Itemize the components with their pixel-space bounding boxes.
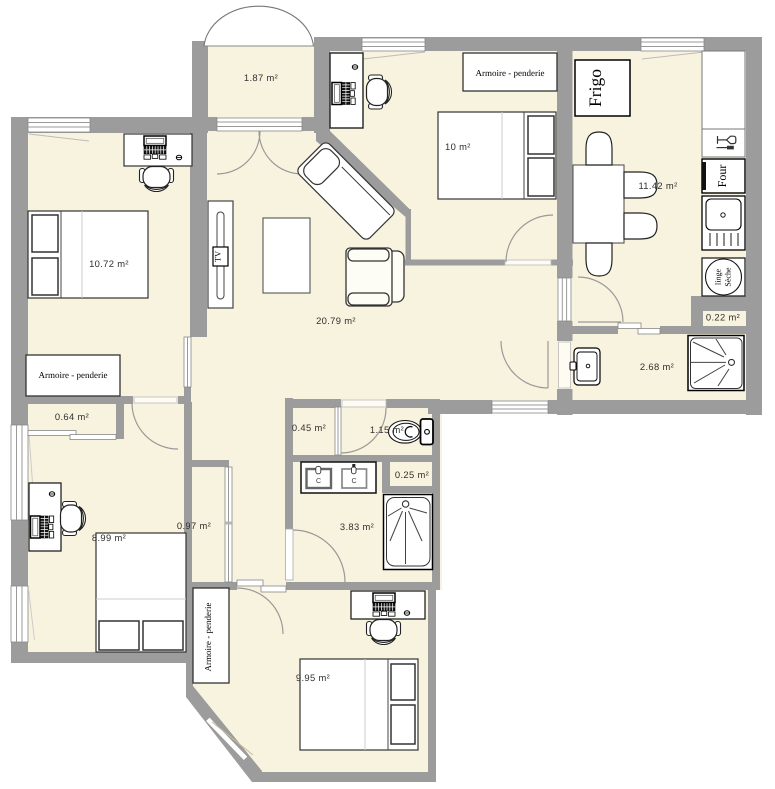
svg-text:0.64 m²: 0.64 m² [55,411,89,422]
svg-text:3.83 m²: 3.83 m² [340,521,374,532]
svg-text:10.72 m²: 10.72 m² [89,258,129,269]
svg-text:0.45 m²: 0.45 m² [292,422,326,433]
svg-text:1.87 m²: 1.87 m² [244,72,278,83]
svg-text:Armoire - penderie: Armoire - penderie [203,603,213,672]
svg-text:linge: linge [714,269,723,285]
svg-text:TV: TV [213,250,223,262]
svg-text:Armoire - penderie: Armoire - penderie [39,370,108,380]
svg-text:0.97 m²: 0.97 m² [177,520,211,531]
svg-text:Frigo: Frigo [585,69,605,107]
svg-text:Armoire - penderie: Armoire - penderie [476,68,545,78]
svg-text:0.22 m²: 0.22 m² [706,312,740,323]
svg-text:10 m²: 10 m² [445,141,471,152]
svg-text:9.95 m²: 9.95 m² [296,672,330,683]
svg-text:20.79 m²: 20.79 m² [316,315,356,326]
svg-text:C: C [316,478,321,485]
svg-text:8.99 m²: 8.99 m² [92,532,126,543]
svg-text:Sèche: Sèche [724,267,733,287]
svg-text:Four: Four [715,165,729,188]
svg-text:0.25 m²: 0.25 m² [395,469,429,480]
svg-text:2.68 m²: 2.68 m² [640,361,674,372]
svg-text:1.15 m²: 1.15 m² [370,424,404,435]
svg-text:11.42 m²: 11.42 m² [638,180,677,191]
svg-text:C: C [351,478,356,485]
